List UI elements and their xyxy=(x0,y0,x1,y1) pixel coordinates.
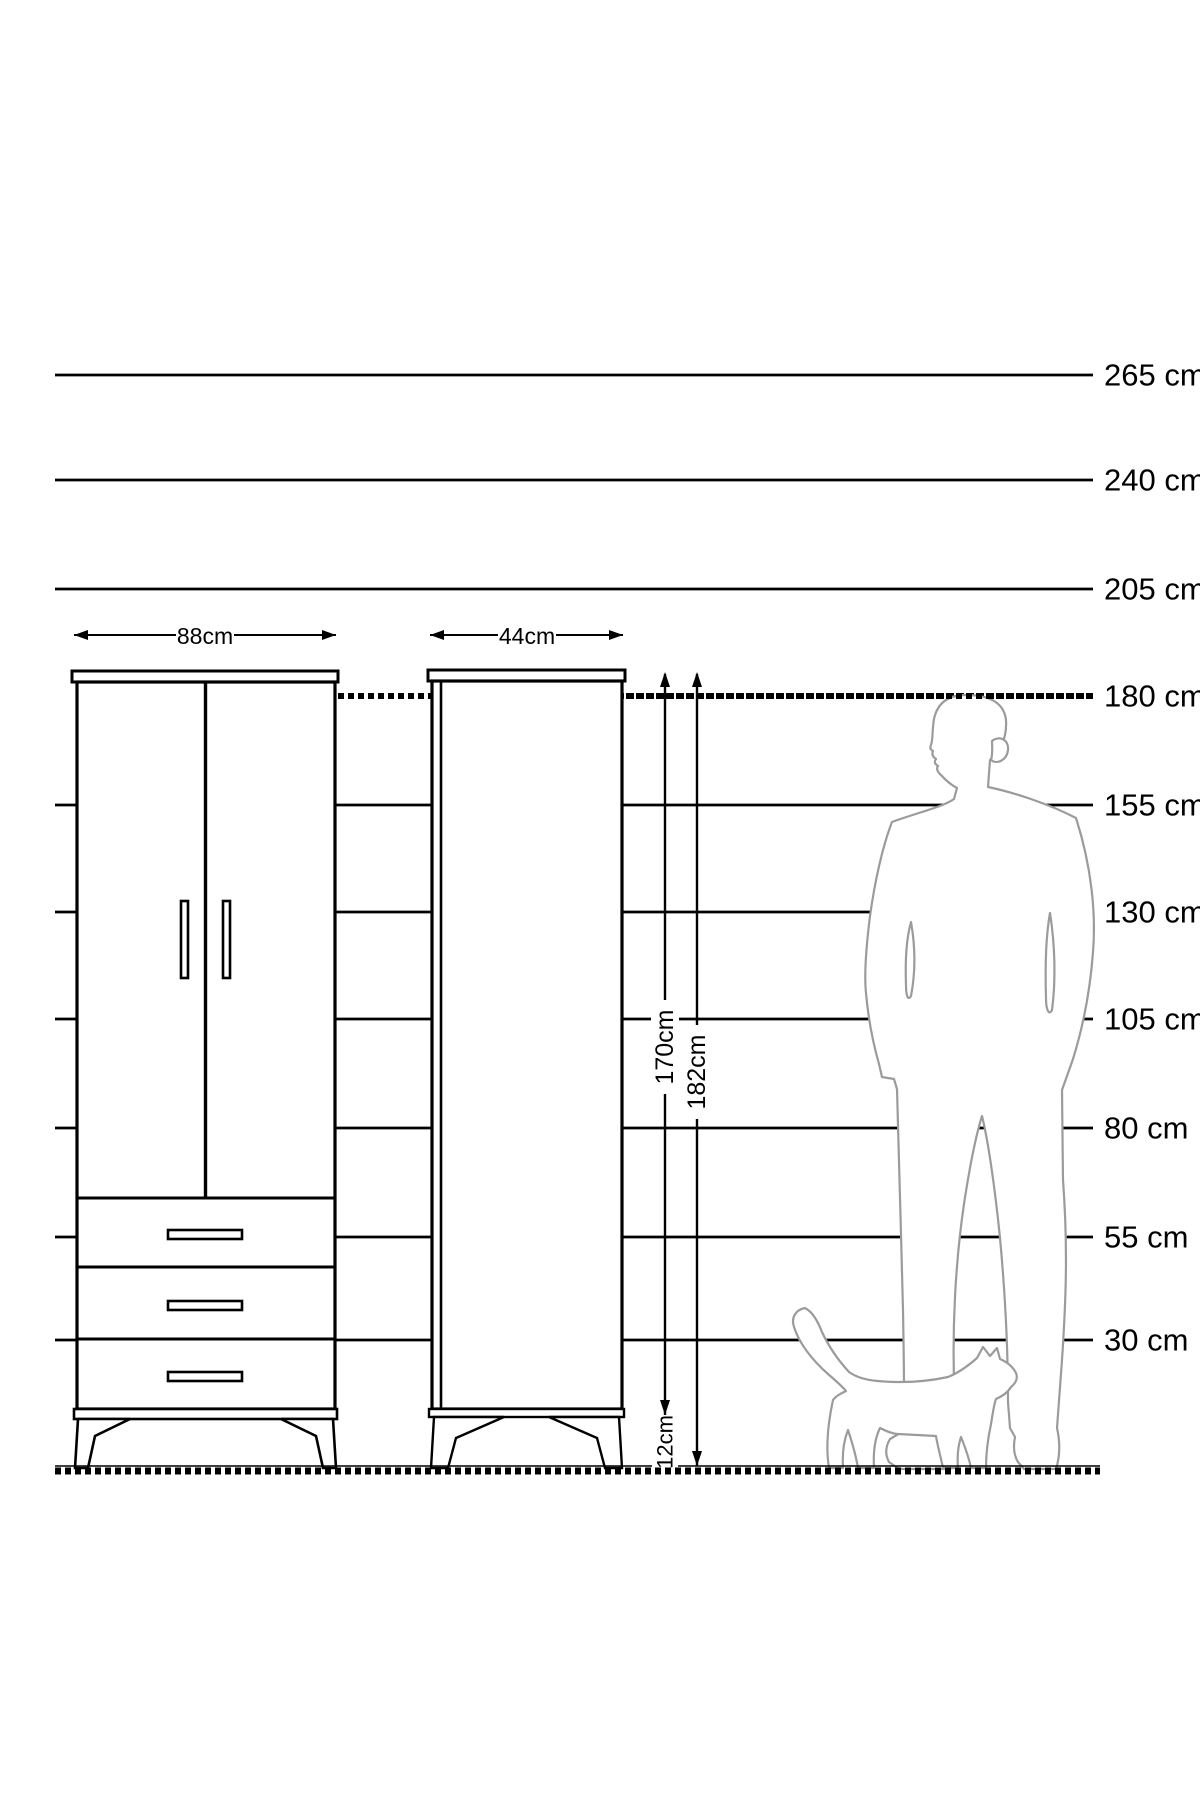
arrow-up-icon xyxy=(692,672,702,687)
height-label-265: 265 cm xyxy=(1104,358,1200,393)
cabinet xyxy=(428,670,625,1468)
diagram-canvas: 265 cm240 cm205 cm180 cm155 cm130 cm105 … xyxy=(0,0,1200,1800)
wardrobe-plinth xyxy=(74,1409,337,1419)
wardrobe-left-leg xyxy=(75,1419,130,1468)
total-height-label: 182cm xyxy=(683,1034,711,1109)
arrow-left-icon xyxy=(430,630,444,640)
wardrobe-drawer-handle-1 xyxy=(168,1230,242,1239)
wardrobe-left-door-handle xyxy=(181,901,188,978)
cabinet-width-label: 44cm xyxy=(499,623,555,649)
height-label-155: 155 cm xyxy=(1104,788,1200,823)
dimension-wardrobe-width: 88cm xyxy=(74,622,336,649)
height-label-240: 240 cm xyxy=(1104,463,1200,498)
arrow-right-icon xyxy=(609,630,623,640)
wardrobe-width-label: 88cm xyxy=(177,623,233,649)
height-label-205: 205 cm xyxy=(1104,572,1200,607)
wardrobe-drawer-handle-3 xyxy=(168,1372,242,1381)
height-label-30: 30 cm xyxy=(1104,1323,1188,1358)
wardrobe-drawer-handle-2 xyxy=(168,1301,242,1310)
wardrobe xyxy=(72,671,338,1468)
wardrobe-right-leg xyxy=(281,1419,336,1468)
man-ear xyxy=(991,738,1008,762)
furniture-dimension-diagram: 265 cm240 cm205 cm180 cm155 cm130 cm105 … xyxy=(0,0,1200,1800)
dimension-leg-height: 12cm xyxy=(652,1415,678,1469)
body-height-label: 170cm xyxy=(651,1009,679,1084)
leg-height-label: 12cm xyxy=(653,1415,678,1469)
cabinet-top-panel xyxy=(428,670,625,681)
wardrobe-top-panel xyxy=(72,671,338,682)
height-label-105: 105 cm xyxy=(1104,1002,1200,1037)
cabinet-right-leg xyxy=(549,1417,622,1468)
arrow-left-icon xyxy=(74,630,88,640)
wardrobe-right-door-handle xyxy=(223,901,230,978)
dimension-total-height: 182cm xyxy=(683,672,711,1466)
height-label-180: 180 cm xyxy=(1104,679,1200,714)
arrow-down-icon xyxy=(692,1451,702,1466)
arrow-down-icon xyxy=(660,1400,670,1415)
arrow-up-icon xyxy=(660,672,670,687)
dimension-body-height: 170cm xyxy=(651,672,679,1415)
man-lapel-right xyxy=(1046,913,1055,1012)
height-label-80: 80 cm xyxy=(1104,1111,1188,1146)
height-label-130: 130 cm xyxy=(1104,895,1200,930)
dimension-cabinet-width: 44cm xyxy=(430,622,623,649)
cabinet-left-leg xyxy=(431,1417,504,1468)
arrow-right-icon xyxy=(322,630,336,640)
cabinet-body xyxy=(432,681,622,1409)
height-label-55: 55 cm xyxy=(1104,1220,1188,1255)
